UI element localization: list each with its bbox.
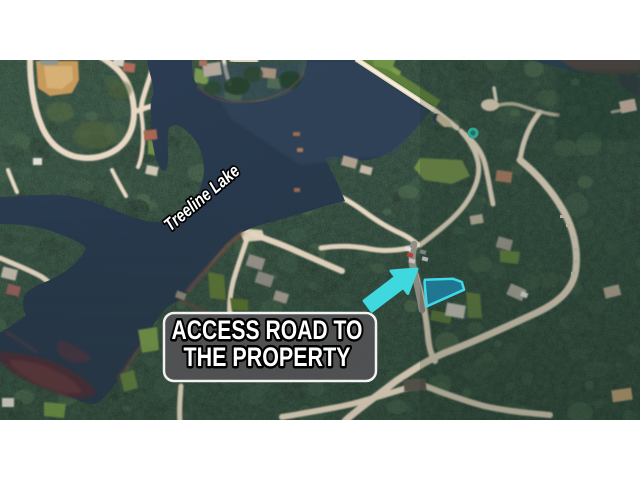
svg-text:THE PROPERTY: THE PROPERTY <box>184 342 351 372</box>
svg-text:ACCESS ROAD TO: ACCESS ROAD TO <box>172 315 363 345</box>
